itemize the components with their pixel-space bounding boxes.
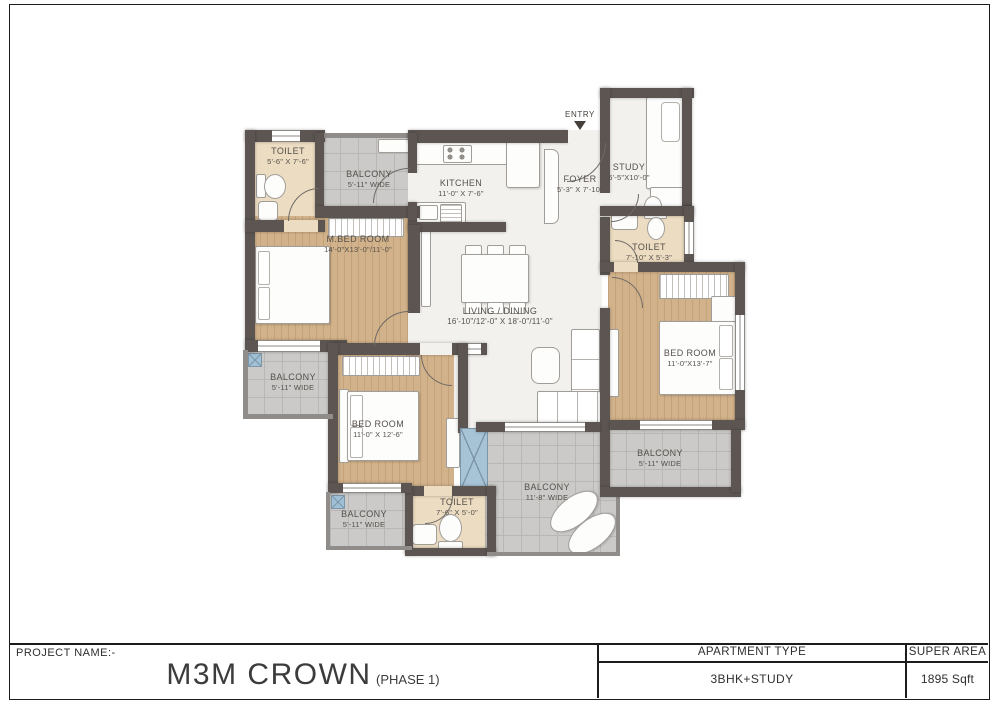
entry-arrow-icon [574,121,586,130]
balcony-edge [616,495,620,556]
wardrobe [342,356,420,376]
glazed-panel [460,428,488,490]
wall-segment [405,492,413,554]
glazed-corner-panel [248,353,262,367]
fridge [506,141,540,188]
wc-bowl [647,217,665,240]
window [272,130,300,142]
room-label-bedroom-2: BED ROOM 11'-0" X 12'-6" [336,419,420,440]
room-label-toilet-1: TOILET 5'-6" X 7'-6" [247,146,329,167]
project-name-text: M3M CROWN [166,658,371,691]
wall-segment [458,343,468,433]
window [258,340,320,352]
room-label-toilet-2: TOILET 7'-10" X 5'-3" [607,242,691,263]
room-label-toilet-3: TOILET 7'-6" X 5'-0" [415,497,499,518]
room-label-study: STUDY 6'-5"X10'-0" [587,162,671,183]
room-label-living-dining: LIVING / DINING 16'-10"/12'-0" X 18'-0"/… [418,306,582,327]
balcony-edge [243,350,248,418]
door-opening [420,343,452,355]
room-label-balcony-bottom-left: BALCONY 5'-11" WIDE [322,509,406,530]
window [343,483,401,493]
room-label-balcony-top: BALCONY 5'-11" WIDE [327,169,411,190]
wall-segment [405,548,496,556]
ottoman [531,347,560,384]
room-label-balcony-bottom-mid: BALCONY 11'-8" WIDE [505,482,589,503]
wash-basin [412,524,437,545]
wall-segment [408,486,496,496]
wall-segment [408,133,417,173]
project-name: M3M CROWN (PHASE 1) [9,652,597,704]
room-label-balcony-left: BALCONY 5'-11" WIDE [251,372,335,393]
wall-segment [682,88,692,210]
floor-plan-sheet: ENTRY TOILET 5'-6" X 7'-6" BALCONY 5'-11… [0,0,1000,705]
room-label-balcony-right: BALCONY 5'-11" WIDE [618,448,702,469]
glazed-corner-panel [331,495,345,509]
dining-table [461,254,529,303]
sink [419,205,438,220]
wall-curtain-panel [421,227,431,307]
wall-segment [600,88,694,98]
wall-segment [315,206,420,218]
super-area-value: 1895 Sqft [907,661,988,698]
entry-label: ENTRY [558,110,602,119]
apartment-type-value: 3BHK+STUDY [599,661,905,698]
study-pillow [661,102,680,142]
bedside-unit [711,296,737,323]
wc-bowl [264,174,286,199]
door-opening [424,486,452,496]
project-phase-text: (PHASE 1) [376,672,440,687]
room-label-kitchen: KITCHEN 11'-0" X 7'-6" [419,178,503,199]
master-bed-pillow [258,287,270,320]
wash-basin [258,201,278,221]
wc-bowl [439,514,462,542]
window [735,315,745,390]
dishwasher [440,204,462,223]
wall-segment [600,308,610,488]
sofa-horizontal [537,391,601,424]
wall-segment [408,130,568,143]
sliding-window [505,422,585,432]
wall-segment [600,487,741,497]
master-bed-pillow [258,251,270,285]
door-opening [614,262,638,272]
super-area-label: SUPER AREA [907,643,988,661]
balcony-edge [243,414,333,419]
wall-segment [731,430,741,492]
wall-curtain-panel [609,329,619,397]
wall-segment [408,222,506,232]
apartment-type-label: APARTMENT TYPE [599,643,905,661]
balcony-edge [326,546,412,550]
stove-burners-icon [443,145,470,161]
room-label-master-bedroom: M.BED ROOM 14'-0"X13'-0"/11'-0" [306,234,410,255]
balcony-edge [487,552,620,556]
window [640,420,712,430]
utility-shelf [378,139,410,153]
room-label-bedroom-right: BED ROOM 11'-0"X13'-7" [648,348,732,369]
door-opening [284,220,318,232]
balcony-edge [322,133,414,138]
